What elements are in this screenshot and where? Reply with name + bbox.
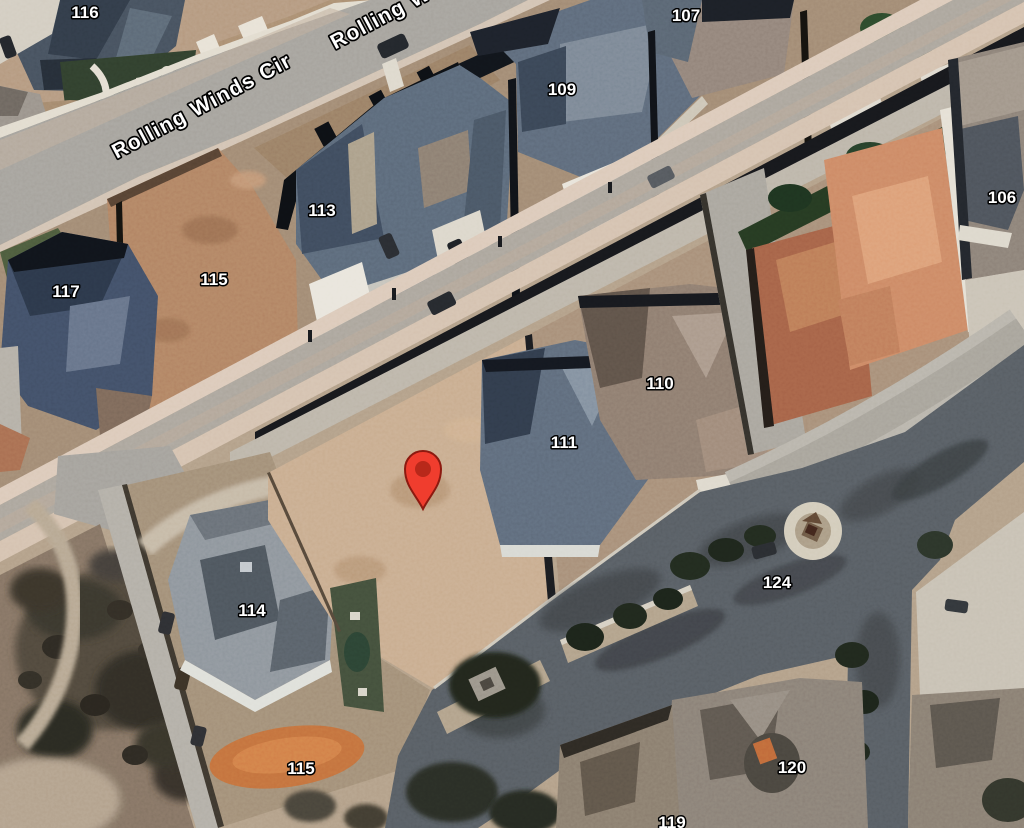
svg-text:106: 106 [988, 188, 1016, 207]
svg-text:124: 124 [763, 573, 792, 592]
svg-text:115: 115 [200, 270, 227, 289]
svg-text:120: 120 [778, 758, 806, 777]
svg-text:116: 116 [71, 3, 98, 22]
svg-text:109: 109 [548, 80, 576, 99]
svg-text:113: 113 [308, 201, 335, 220]
svg-text:114: 114 [238, 601, 266, 620]
svg-text:107: 107 [672, 6, 700, 25]
svg-text:117: 117 [52, 282, 79, 301]
svg-text:115: 115 [287, 759, 314, 778]
svg-text:111: 111 [551, 433, 578, 452]
svg-text:119: 119 [658, 813, 685, 828]
svg-text:110: 110 [646, 374, 673, 393]
